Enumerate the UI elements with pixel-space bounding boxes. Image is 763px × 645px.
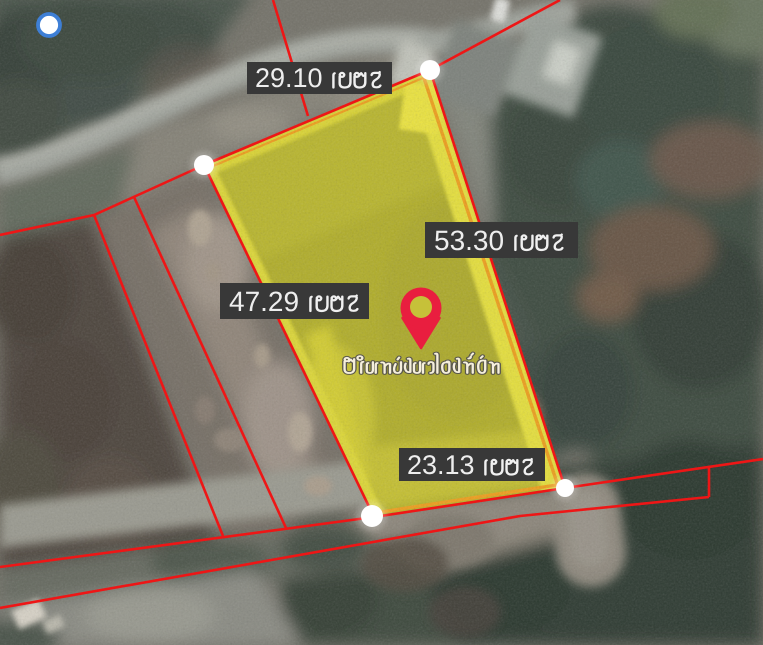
svg-text:23.13: 23.13 [407, 450, 475, 480]
svg-text:47.29: 47.29 [229, 286, 299, 317]
svg-text:29.10: 29.10 [255, 63, 323, 93]
svg-text:53.30: 53.30 [434, 225, 504, 256]
